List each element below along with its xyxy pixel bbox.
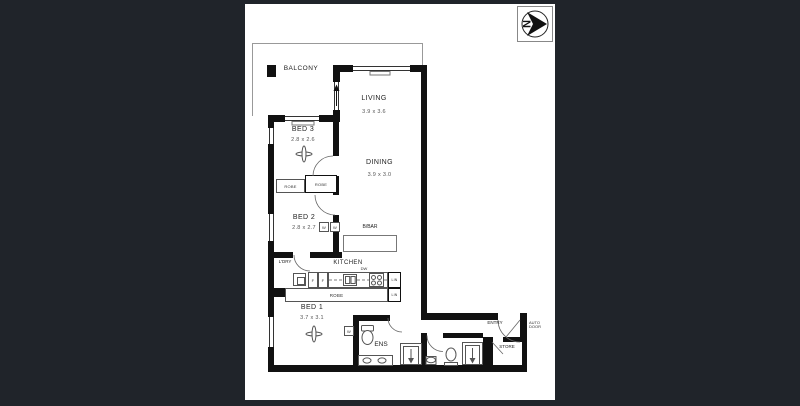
room-label-bed2: BED 2: [279, 214, 329, 222]
fixture-layer: [245, 4, 555, 400]
room-label-store: STORE: [491, 345, 523, 350]
room-label-laundry: L'DRY: [273, 260, 297, 265]
dishwasher-label: DW: [357, 267, 371, 271]
room-label-ensuite: ENS: [366, 341, 396, 348]
toilet-icon: [445, 348, 458, 366]
room-label-dining: DINING: [352, 159, 407, 167]
cooktop-icon: [370, 274, 384, 287]
north-arrow-icon: N: [518, 7, 552, 41]
north-label: N: [520, 20, 532, 28]
label-breakfast-bar: B/BAR: [344, 225, 396, 231]
vanity-basins-icon: [359, 356, 393, 366]
kitchen-sink-icon: [344, 275, 357, 286]
ceiling-fan-icon: [296, 146, 312, 162]
north-compass: N: [517, 6, 553, 42]
floorplan-page: ROBE ROBE ROBE LIN LIN W W W F F: [245, 4, 555, 400]
shower-icon: [401, 344, 422, 365]
room-label-balcony: BALCONY: [279, 65, 323, 72]
auto-door-line2: DOOR: [529, 325, 547, 329]
room-dims-living: 3.9 x 3.6: [349, 109, 399, 115]
room-label-entry: ENTRY: [481, 321, 509, 326]
room-label-living: LIVING: [349, 95, 399, 103]
room-dims-bed2: 2.8 x 2.7: [279, 225, 329, 231]
room-dims-bed1: 3.7 x 3.1: [287, 315, 337, 321]
screenshot-root: { "colors": { "background": "#20242a", "…: [0, 0, 800, 406]
ceiling-fan-icon: [306, 326, 322, 342]
shower-icon: [463, 343, 483, 365]
auto-door-note: AUTO DOOR: [529, 321, 547, 330]
room-dims-dining: 3.9 x 3.0: [352, 172, 407, 178]
room-label-bed1: BED 1: [287, 304, 337, 312]
room-dims-bed3: 2.8 x 2.6: [278, 137, 328, 143]
room-label-bed3: BED 3: [278, 126, 328, 134]
floorplan: ROBE ROBE ROBE LIN LIN W W W F F: [245, 4, 555, 400]
pedestal-basin-icon: [426, 357, 436, 365]
